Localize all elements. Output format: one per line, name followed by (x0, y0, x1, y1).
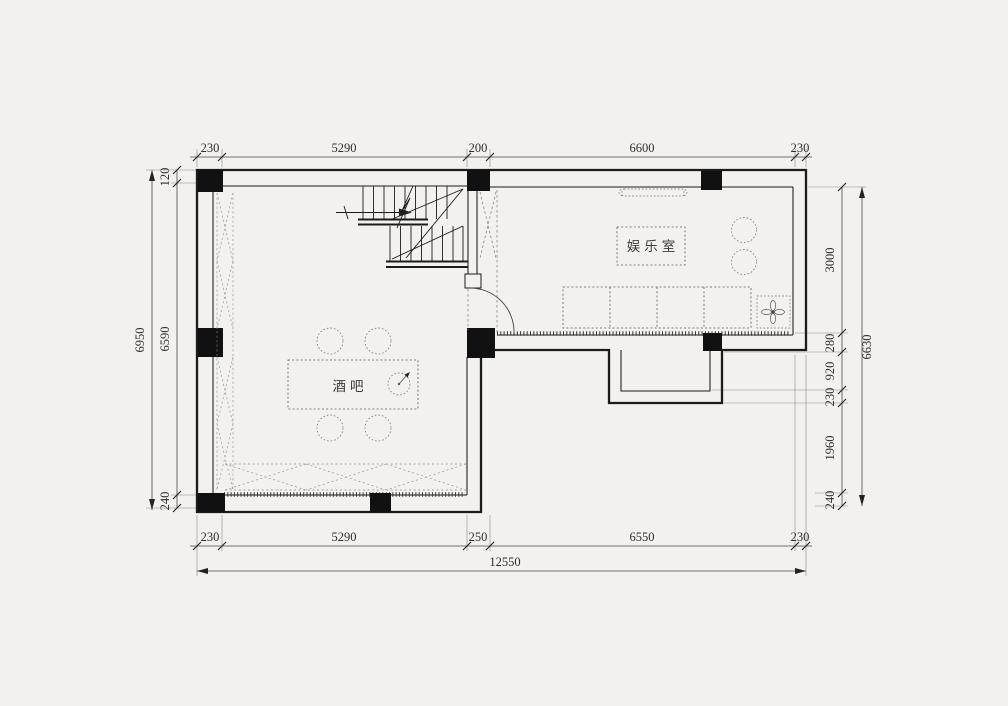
dim-label: 250 (469, 530, 488, 544)
dim-label: 6590 (158, 327, 172, 352)
bar-sink-symbol (388, 372, 410, 395)
column (370, 493, 391, 512)
dim-label: 280 (823, 334, 837, 353)
room-label-bar: 酒吧 (333, 379, 368, 394)
dim-label: 3000 (823, 248, 837, 273)
column (198, 170, 223, 192)
stair-landing-edge2 (386, 262, 468, 268)
dim-label: 240 (823, 491, 837, 510)
dim-label-overall-width: 12550 (489, 555, 520, 569)
door-swing-arc (470, 288, 514, 331)
staircase (336, 186, 497, 332)
entertainment-room-furniture (563, 189, 790, 328)
dim-label-overall-right: 6630 (860, 335, 874, 360)
floor-plan-page: 230 5290 200 6600 230 230 5290 250 6550 … (0, 0, 1008, 706)
dim-label: 5290 (332, 530, 357, 544)
side-table (757, 296, 790, 328)
dim-label: 230 (201, 141, 220, 155)
dimension-ticks (173, 153, 846, 550)
dimension-labels: 230 5290 200 6600 230 230 5290 250 6550 … (133, 141, 874, 569)
dim-label: 920 (823, 362, 837, 381)
dim-label: 120 (158, 168, 172, 187)
dim-label: 230 (201, 530, 220, 544)
stool (317, 415, 343, 441)
column (467, 328, 495, 358)
room-labels: 娱乐室 酒吧 (333, 238, 680, 394)
dim-label: 1960 (823, 436, 837, 461)
columns (198, 170, 722, 512)
wall-decor-bands (217, 193, 466, 490)
room-label-entertainment: 娱乐室 (627, 238, 680, 254)
round-chair (732, 218, 757, 243)
dimension-arrows (149, 170, 865, 574)
tv-on-wall (619, 189, 687, 196)
stair-void-edge (480, 190, 497, 332)
stair-direction-arrow (336, 186, 413, 228)
dim-label: 5290 (332, 141, 357, 155)
dim-label: 230 (823, 388, 837, 407)
column (198, 328, 223, 357)
dim-label: 240 (158, 492, 172, 511)
column (703, 333, 722, 351)
dim-label: 6600 (630, 141, 655, 155)
round-chair (732, 250, 757, 275)
dim-label-overall-left: 6950 (133, 328, 147, 353)
floor-plan-canvas: 230 5290 200 6600 230 230 5290 250 6550 … (0, 0, 1008, 706)
dim-label: 230 (791, 530, 810, 544)
dim-label: 200 (469, 141, 488, 155)
stool (365, 415, 391, 441)
sofa (563, 287, 751, 328)
fan-symbol (762, 301, 785, 324)
column (701, 171, 722, 190)
dim-label: 6550 (630, 530, 655, 544)
dim-label: 230 (791, 141, 810, 155)
door (468, 288, 514, 331)
column (198, 493, 225, 512)
bottom-wall-panel-band (225, 464, 466, 490)
stool (365, 328, 391, 354)
stool (317, 328, 343, 354)
stair-landing-edge (358, 220, 428, 225)
stair-wall-end-cap (465, 274, 481, 288)
column (467, 170, 490, 191)
